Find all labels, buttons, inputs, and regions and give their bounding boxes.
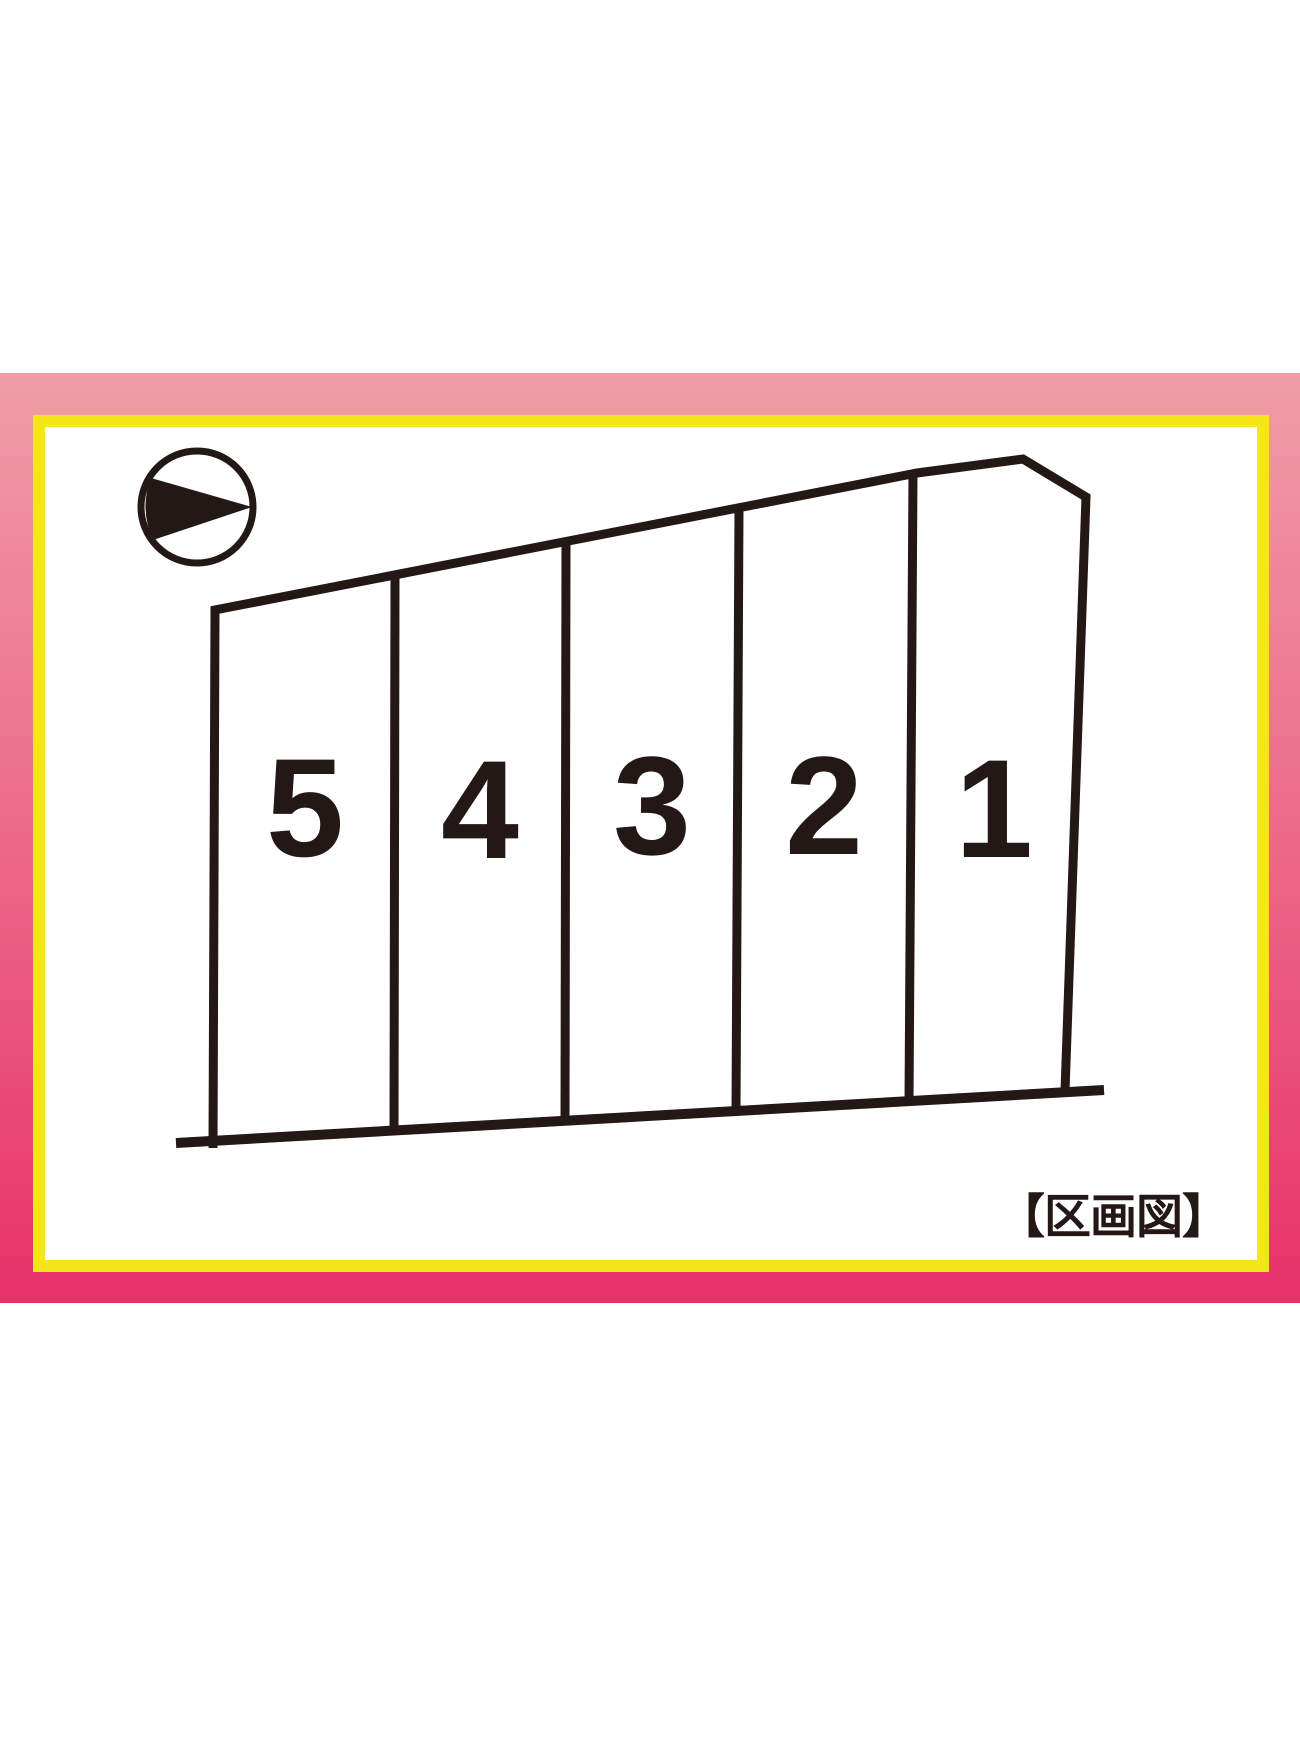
lot-label-4: 4 xyxy=(441,740,519,880)
lot-label-2: 2 xyxy=(785,736,863,876)
lot-label-1: 1 xyxy=(955,739,1033,879)
page: 5 4 3 2 1 【区画図】 xyxy=(0,0,1300,1758)
diagram-caption: 【区画図】 xyxy=(998,1190,1228,1244)
lot-label-5: 5 xyxy=(266,738,344,878)
lot-label-3: 3 xyxy=(613,736,691,876)
